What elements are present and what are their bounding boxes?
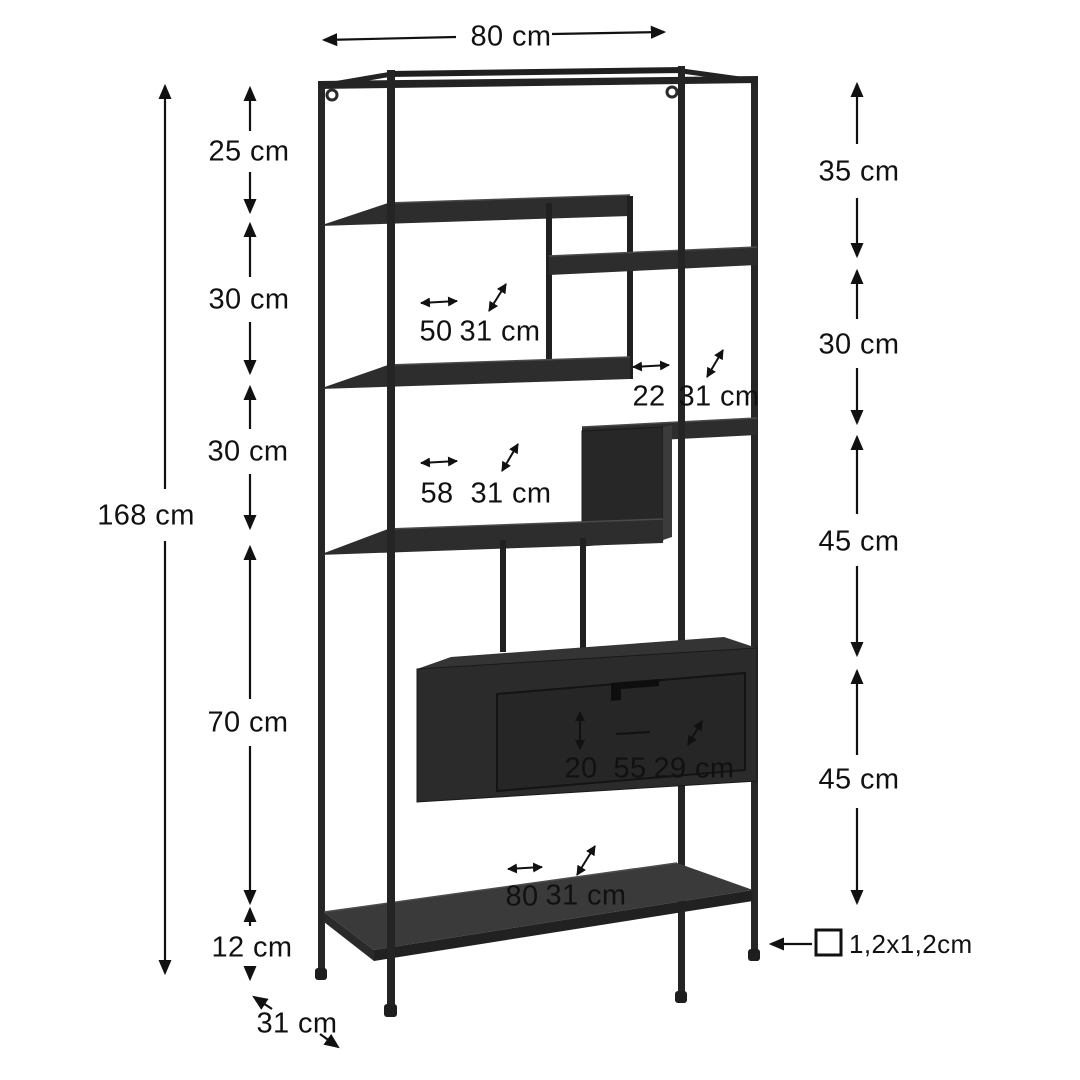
drawer-depth-label: 29 cm xyxy=(654,755,735,784)
right-segment-label-45b: 45 cm xyxy=(819,766,900,795)
shelving-unit xyxy=(315,66,760,1017)
drawer-height-label: 20 xyxy=(564,755,597,784)
arrow-58-depth xyxy=(502,444,518,471)
arrow-22-depth xyxy=(707,350,723,377)
closed-box-side xyxy=(663,425,672,540)
shelf-lower-wide xyxy=(319,519,663,555)
front-left-post xyxy=(387,70,395,1006)
arrow-width-right xyxy=(552,32,664,34)
left-segment-label-30a: 30 cm xyxy=(209,286,290,315)
shelf1-width-label: 50 xyxy=(419,318,452,347)
bottom-shelf-depth-label: 31 cm xyxy=(546,882,627,911)
total-height-label: 168 cm xyxy=(97,502,195,531)
shelf1-depth-label: 31 cm xyxy=(460,318,541,347)
left-segment-label-70: 70 cm xyxy=(208,709,289,738)
top-rail-inner xyxy=(388,67,684,77)
tube-size-label: 1,2x1,2cm xyxy=(849,931,973,957)
arrow-50-width xyxy=(421,301,457,303)
tube-square-icon xyxy=(816,930,841,955)
arrow-width-left xyxy=(324,37,456,40)
drawer-width-label: 55 xyxy=(613,755,646,784)
divider-lower-left xyxy=(500,540,506,652)
arrow-58-width xyxy=(421,461,457,463)
shelf3-width-label: 58 xyxy=(420,480,453,509)
furniture-drawing xyxy=(0,0,1080,1080)
wall-mount-eyelet-right xyxy=(667,87,677,97)
width-label: 80 cm xyxy=(471,23,552,52)
left-segment-label-12: 12 cm xyxy=(212,934,293,963)
shelf-end-upright xyxy=(627,196,633,379)
wall-mount-eyelet-left xyxy=(327,90,337,100)
back-right-post xyxy=(751,78,758,961)
top-rail-outer xyxy=(318,76,758,89)
arrow-80-width xyxy=(508,867,542,869)
dimension-diagram: 80 cm 25 cm 30 cm 30 cm 70 cm 12 cm 168 … xyxy=(0,0,1080,1080)
foot-back-left xyxy=(315,968,327,980)
divider-lower-right xyxy=(580,538,586,650)
bottom-shelf-width-label: 80 xyxy=(505,883,538,912)
left-segment-label-30b: 30 cm xyxy=(208,438,289,467)
arrow-50-depth xyxy=(489,284,506,311)
foot-front-left xyxy=(384,1004,397,1017)
right-segment-label-30: 30 cm xyxy=(819,331,900,360)
shelf3-depth-label: 31 cm xyxy=(471,480,552,509)
arrow-80-depth xyxy=(577,846,595,875)
drawer-handle-tab xyxy=(611,689,621,701)
back-left-post xyxy=(318,82,325,979)
shelf2-depth-label: 31 cm xyxy=(679,383,760,412)
left-segment-label-25: 25 cm xyxy=(209,138,290,167)
divider-upper xyxy=(546,203,552,381)
right-segment-label-45a: 45 cm xyxy=(819,528,900,557)
front-right-post xyxy=(678,66,685,1003)
arrow-22-width xyxy=(633,365,669,367)
right-segment-label-35: 35 cm xyxy=(819,158,900,187)
depth-label: 31 cm xyxy=(257,1010,338,1039)
foot-back-right xyxy=(748,949,760,961)
shelf2-width-label: 22 xyxy=(632,383,665,412)
foot-front-right xyxy=(675,991,687,1003)
